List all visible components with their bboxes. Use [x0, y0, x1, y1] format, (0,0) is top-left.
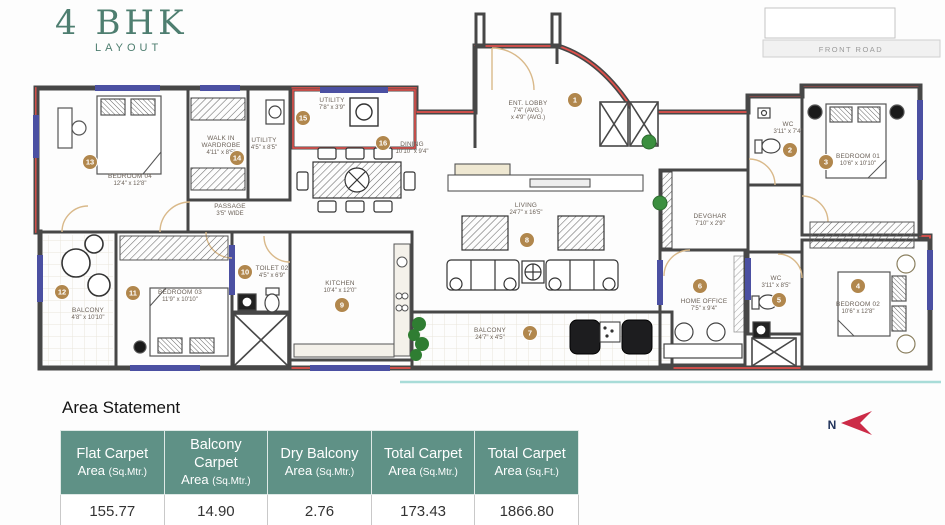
room-label-kitchen: KITCHEN10'4" x 12'0" [324, 280, 357, 294]
room-label-ent-lobby: ENT. LOBBY7'4" (AVG.)x 4'9" (AVG.) [509, 100, 548, 121]
area-column-header: Flat CarpetArea (Sq.Mtr.) [61, 431, 165, 495]
area-value-cell: 14.90 [164, 495, 268, 525]
room-number-balcony: 7 [528, 329, 532, 338]
plan-subtitle: LAYOUT [55, 42, 187, 54]
room-devghar: DEVGHAR7'10" x 2'9" [693, 213, 726, 227]
area-column-header: Total CarpetArea (Sq.Mtr.) [371, 431, 475, 495]
area-column-header: Total CarpetArea (Sq.Ft.) [475, 431, 579, 495]
north-arrow: N [828, 411, 872, 435]
room-walk-in-wardrobe: WALK INWARDROBE4'11" x 8'5"14 [202, 135, 245, 166]
dining-set [297, 148, 415, 212]
room-number-bedroom-01: 3 [824, 158, 828, 167]
room-label-toilet-02: TOILET 024'5" x 6'9" [256, 265, 289, 279]
area-value-cell: 2.76 [268, 495, 372, 525]
room-number-balcony-02: 12 [58, 288, 66, 297]
area-value-cell: 1866.80 [475, 495, 579, 525]
area-value-cell: 155.77 [61, 495, 165, 525]
room-number-bedroom-03: 11 [129, 289, 137, 298]
room-number-home-office: 6 [698, 282, 702, 291]
room-bedroom-03: BEDROOM 0311'9" x 10'10"11 [126, 286, 203, 304]
room-toilet-02: TOILET 024'5" x 6'9"10 [238, 265, 289, 280]
utility-02-fixture [266, 100, 284, 124]
room-label-utility-02: UTILITY4'5" x 8'5" [251, 137, 277, 151]
room-home-office: HOME OFFICE7'5" x 9'4"6 [681, 279, 728, 313]
room-passage: PASSAGE3'5" WIDE [214, 203, 245, 217]
north-label: N [828, 418, 837, 432]
room-wc-01: WC3'11" x 7'4"2 [773, 121, 802, 158]
room-utility-02: UTILITY4'5" x 8'5" [251, 137, 277, 151]
kitchen-counters [294, 244, 410, 357]
plan-title: 4 BHK [55, 6, 187, 40]
area-column-header: Dry BalconyArea (Sq.Mtr.) [268, 431, 372, 495]
room-label-home-office: HOME OFFICE7'5" x 9'4" [681, 298, 728, 312]
front-road-label: FRONT ROAD [819, 45, 883, 54]
room-label-utility: UTILITY7'8" x 3'9" [319, 97, 345, 111]
floorplan-page: FRONT ROAD N ENT. LOBBY7'4" (AVG.)x 4'9"… [0, 0, 945, 525]
room-kitchen: KITCHEN10'4" x 12'0"9 [324, 280, 357, 313]
room-label-passage: PASSAGE3'5" WIDE [214, 203, 245, 217]
utility-washer [350, 98, 378, 126]
room-number-walk-in-wardrobe: 14 [233, 154, 242, 163]
room-number-wc-02: 5 [777, 296, 781, 305]
room-number-toilet-02: 10 [241, 268, 249, 277]
room-label-bedroom-04: BEDROOM 0412'4" x 12'8" [108, 173, 152, 187]
toilet-02-fixtures [238, 288, 279, 312]
area-column-header: Balcony CarpetArea (Sq.Mtr.) [164, 431, 268, 495]
room-number-living: 8 [525, 236, 529, 245]
room-ent-lobby: ENT. LOBBY7'4" (AVG.)x 4'9" (AVG.)1 [509, 93, 583, 122]
room-number-ent-lobby: 1 [573, 96, 577, 105]
foyer-console [448, 164, 643, 191]
area-statement-section: Area Statement Flat CarpetArea (Sq.Mtr.)… [60, 398, 590, 525]
room-number-kitchen: 9 [340, 301, 344, 310]
room-utility: UTILITY7'8" x 3'9"15 [296, 97, 346, 126]
north-arrow-icon [841, 411, 872, 435]
area-statement-title: Area Statement [62, 398, 590, 418]
room-label-living: LIVING24'7" x 16'5" [510, 202, 543, 216]
bedroom-04-furniture [58, 96, 161, 174]
area-value-cell: 173.43 [371, 495, 475, 525]
bedroom-01-furniture [808, 104, 914, 248]
area-table-header-row: Flat CarpetArea (Sq.Mtr.)Balcony CarpetA… [61, 431, 579, 495]
room-label-devghar: DEVGHAR7'10" x 2'9" [693, 213, 726, 227]
devghar-furniture [642, 135, 672, 248]
area-statement-table: Flat CarpetArea (Sq.Mtr.)Balcony CarpetA… [60, 430, 579, 525]
room-label-wc-01: WC3'11" x 7'4" [773, 121, 802, 135]
room-label-wc-02: WC3'11" x 8'5" [761, 275, 790, 289]
room-number-wc-01: 2 [788, 146, 792, 155]
living-furniture [447, 216, 618, 290]
room-number-utility: 15 [299, 114, 307, 123]
area-table-value-row: 155.7714.902.76173.431866.80 [61, 495, 579, 525]
plan-title-block: 4 BHK LAYOUT [55, 6, 187, 54]
room-number-bedroom-04: 13 [86, 158, 94, 167]
room-living: LIVING24'7" x 16'5"8 [510, 202, 543, 248]
room-number-dining: 16 [379, 139, 387, 148]
front-road: FRONT ROAD [763, 8, 940, 57]
